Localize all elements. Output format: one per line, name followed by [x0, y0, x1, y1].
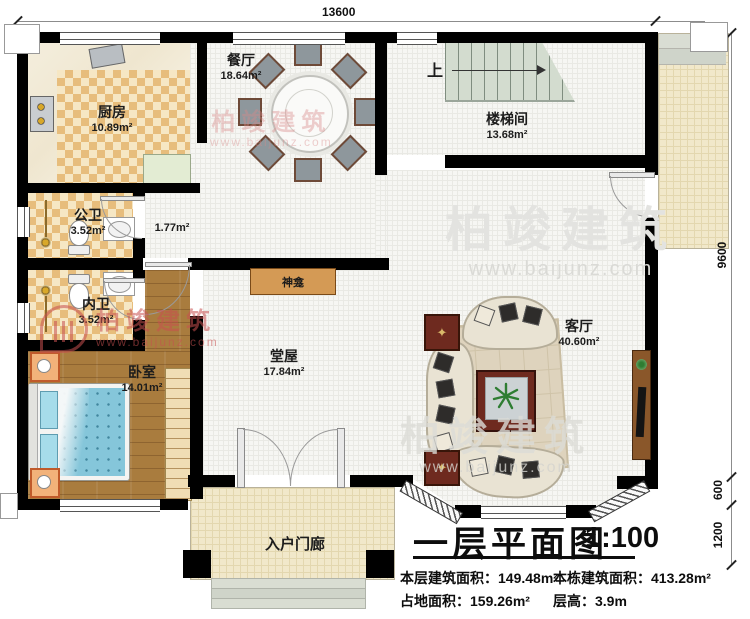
label-inner-bath: 内卫3.52m²	[46, 296, 146, 327]
window-public-bath	[17, 207, 30, 237]
window-kitchen-top	[60, 32, 160, 45]
nightstand-top	[30, 352, 60, 382]
wall-kitchen-bath	[17, 183, 200, 193]
dim-side-value: 9600	[715, 238, 729, 272]
gas-stove	[30, 96, 54, 132]
wall-left	[17, 43, 28, 510]
coffee-table	[476, 370, 536, 432]
wall-stair-bottom	[445, 155, 645, 168]
porch-steps	[211, 578, 366, 608]
porch-pillar-left	[183, 550, 211, 578]
shrine-table: 神龛	[250, 268, 336, 295]
porch-pillar-right	[366, 550, 394, 578]
wall-bath2-bottom	[17, 340, 145, 351]
stat-footprint: 占地面积：159.26m²	[400, 591, 530, 611]
wall-bath2-right-a	[133, 270, 145, 278]
mid-passage-floor	[375, 175, 387, 258]
label-porch: 入户门廊	[225, 536, 365, 555]
label-stairwell: 楼梯间13.68m²	[457, 111, 557, 142]
window-dining-top	[233, 32, 345, 45]
window-stair-top	[397, 32, 437, 45]
label-hall: 堂屋17.84m²	[234, 348, 334, 379]
tv-cabinet	[632, 350, 651, 460]
window-bedroom	[60, 499, 160, 512]
wall-bath-divider	[17, 258, 143, 270]
floor-plan-canvas: 神龛 ✦ ✦	[0, 0, 750, 619]
wall-hall-bottom-left	[188, 475, 235, 487]
label-dining: 餐厅18.64m²	[196, 52, 286, 83]
bed	[28, 383, 130, 481]
tv-icon	[636, 387, 647, 437]
label-corridor: 1.77m²	[142, 222, 202, 236]
label-public-bath: 公卫3.52m²	[38, 207, 138, 238]
stat-total-area: 本栋建筑面积：413.28m²	[553, 568, 711, 588]
dim-bay-value: 600	[711, 475, 725, 505]
plant-icon	[491, 381, 521, 411]
wall-dining-stair	[375, 43, 387, 175]
dining-table	[271, 75, 349, 153]
wall-bath-right-b	[133, 238, 145, 258]
title-underline	[413, 556, 635, 559]
wall-vestibule-right	[190, 316, 203, 499]
stat-floor-area: 本层建筑面积：149.48m²	[400, 568, 558, 588]
plan-scale: 1:100	[585, 522, 659, 555]
nightstand-bottom	[30, 468, 60, 498]
dim-porch-value: 1200	[711, 518, 725, 552]
dim-line-top	[17, 21, 705, 22]
terrace	[658, 33, 729, 249]
axis-box-top-right	[690, 22, 728, 52]
wall-right-upper	[645, 43, 658, 175]
side-table-top: ✦	[424, 314, 460, 351]
porch-floor	[190, 487, 395, 580]
inner-bath-shower-head	[40, 285, 51, 296]
public-bath-shower-head	[40, 237, 51, 248]
window-inner-bath	[17, 303, 30, 333]
axis-box-bottom-left	[0, 493, 18, 519]
label-bedroom: 卧室14.01m²	[92, 364, 192, 395]
shrine-label: 神龛	[282, 274, 304, 290]
label-stair-up: 上	[420, 62, 450, 82]
side-table-bottom: ✦	[424, 450, 460, 486]
stat-height: 层高：3.9m	[553, 591, 627, 611]
label-living: 客厅40.60m²	[529, 318, 629, 349]
plan-title: 一层平面图	[413, 516, 608, 567]
axis-box-top-left	[4, 24, 40, 54]
label-kitchen: 厨房10.89m²	[62, 104, 162, 135]
entry-door-right-leaf	[337, 428, 345, 488]
dim-line-right	[731, 33, 732, 565]
stair-arrow-head	[537, 65, 546, 75]
dim-top-value: 13600	[322, 5, 355, 19]
stair-direction-line	[452, 70, 540, 71]
